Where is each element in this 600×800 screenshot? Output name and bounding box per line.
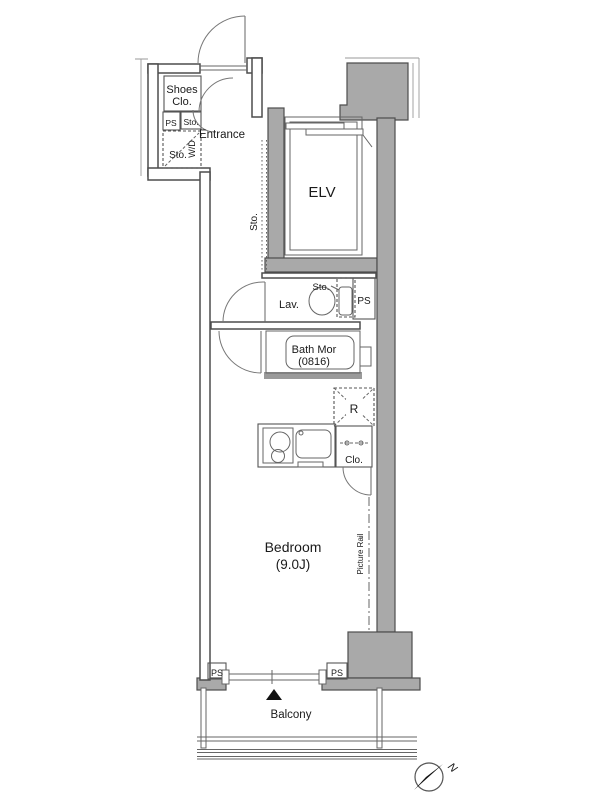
label-closet: Clo. bbox=[345, 455, 363, 466]
label-shoes-closet-2: Clo. bbox=[172, 96, 192, 108]
label-sto-corridor: Sto. bbox=[249, 213, 260, 231]
wall-block-bottom-right bbox=[348, 632, 412, 678]
wall-right bbox=[377, 118, 395, 632]
balcony-post-right bbox=[377, 688, 382, 748]
label-elevator: ELV bbox=[308, 184, 335, 201]
balcony-post-left bbox=[201, 688, 206, 748]
label-bath-2: (0816) bbox=[298, 356, 330, 368]
wall-lav-top bbox=[262, 273, 376, 278]
wall-strip-bottom-right bbox=[322, 678, 420, 690]
label-entrance: Entrance bbox=[199, 129, 245, 141]
wall-left-main bbox=[200, 172, 210, 680]
window-jamb-right bbox=[319, 670, 326, 684]
label-ps-bottom-right: PS bbox=[331, 668, 343, 678]
label-balcony: Balcony bbox=[271, 709, 312, 721]
label-shoes-closet-1: Shoes bbox=[166, 84, 198, 96]
label-sto-entry: Sto. bbox=[183, 117, 198, 127]
floorplan-svg: Shoes Clo. PS Sto. Entrance Sto. W/D Sto… bbox=[0, 0, 600, 800]
label-lavatory: Lav. bbox=[279, 299, 299, 311]
compass-circle bbox=[415, 763, 443, 791]
label-sto-lav: Sto. bbox=[313, 282, 330, 293]
toilet-tank bbox=[339, 287, 352, 315]
label-bedroom-1: Bedroom bbox=[265, 539, 322, 555]
label-fridge: R bbox=[350, 402, 359, 416]
label-ps-bottom-left: PS bbox=[211, 668, 223, 678]
label-sto-wd: Sto. bbox=[169, 150, 187, 161]
label-bedroom-2: (9.0J) bbox=[276, 557, 311, 572]
label-bath-1: Bath Mor bbox=[292, 344, 337, 356]
floorplan-page: Shoes Clo. PS Sto. Entrance Sto. W/D Sto… bbox=[0, 0, 600, 800]
elevator-door-panel-2 bbox=[306, 129, 363, 135]
label-picture-rail: Picture Rail bbox=[356, 533, 365, 574]
wall-left-upper bbox=[148, 64, 158, 176]
wall-elv-bottom bbox=[265, 258, 377, 272]
wall-lav-bath-divider bbox=[211, 322, 360, 329]
compass bbox=[414, 763, 443, 791]
window-jamb-left bbox=[222, 670, 229, 684]
wall-elv-left bbox=[268, 108, 284, 265]
label-wd: W/D bbox=[187, 140, 197, 158]
elevator-door-panel-1 bbox=[286, 123, 344, 129]
label-ps-entry: PS bbox=[165, 118, 177, 128]
wall-jamb-right-upper bbox=[252, 58, 262, 117]
wall-pillar-top-right bbox=[340, 63, 408, 120]
label-ps-lav: PS bbox=[357, 296, 371, 307]
